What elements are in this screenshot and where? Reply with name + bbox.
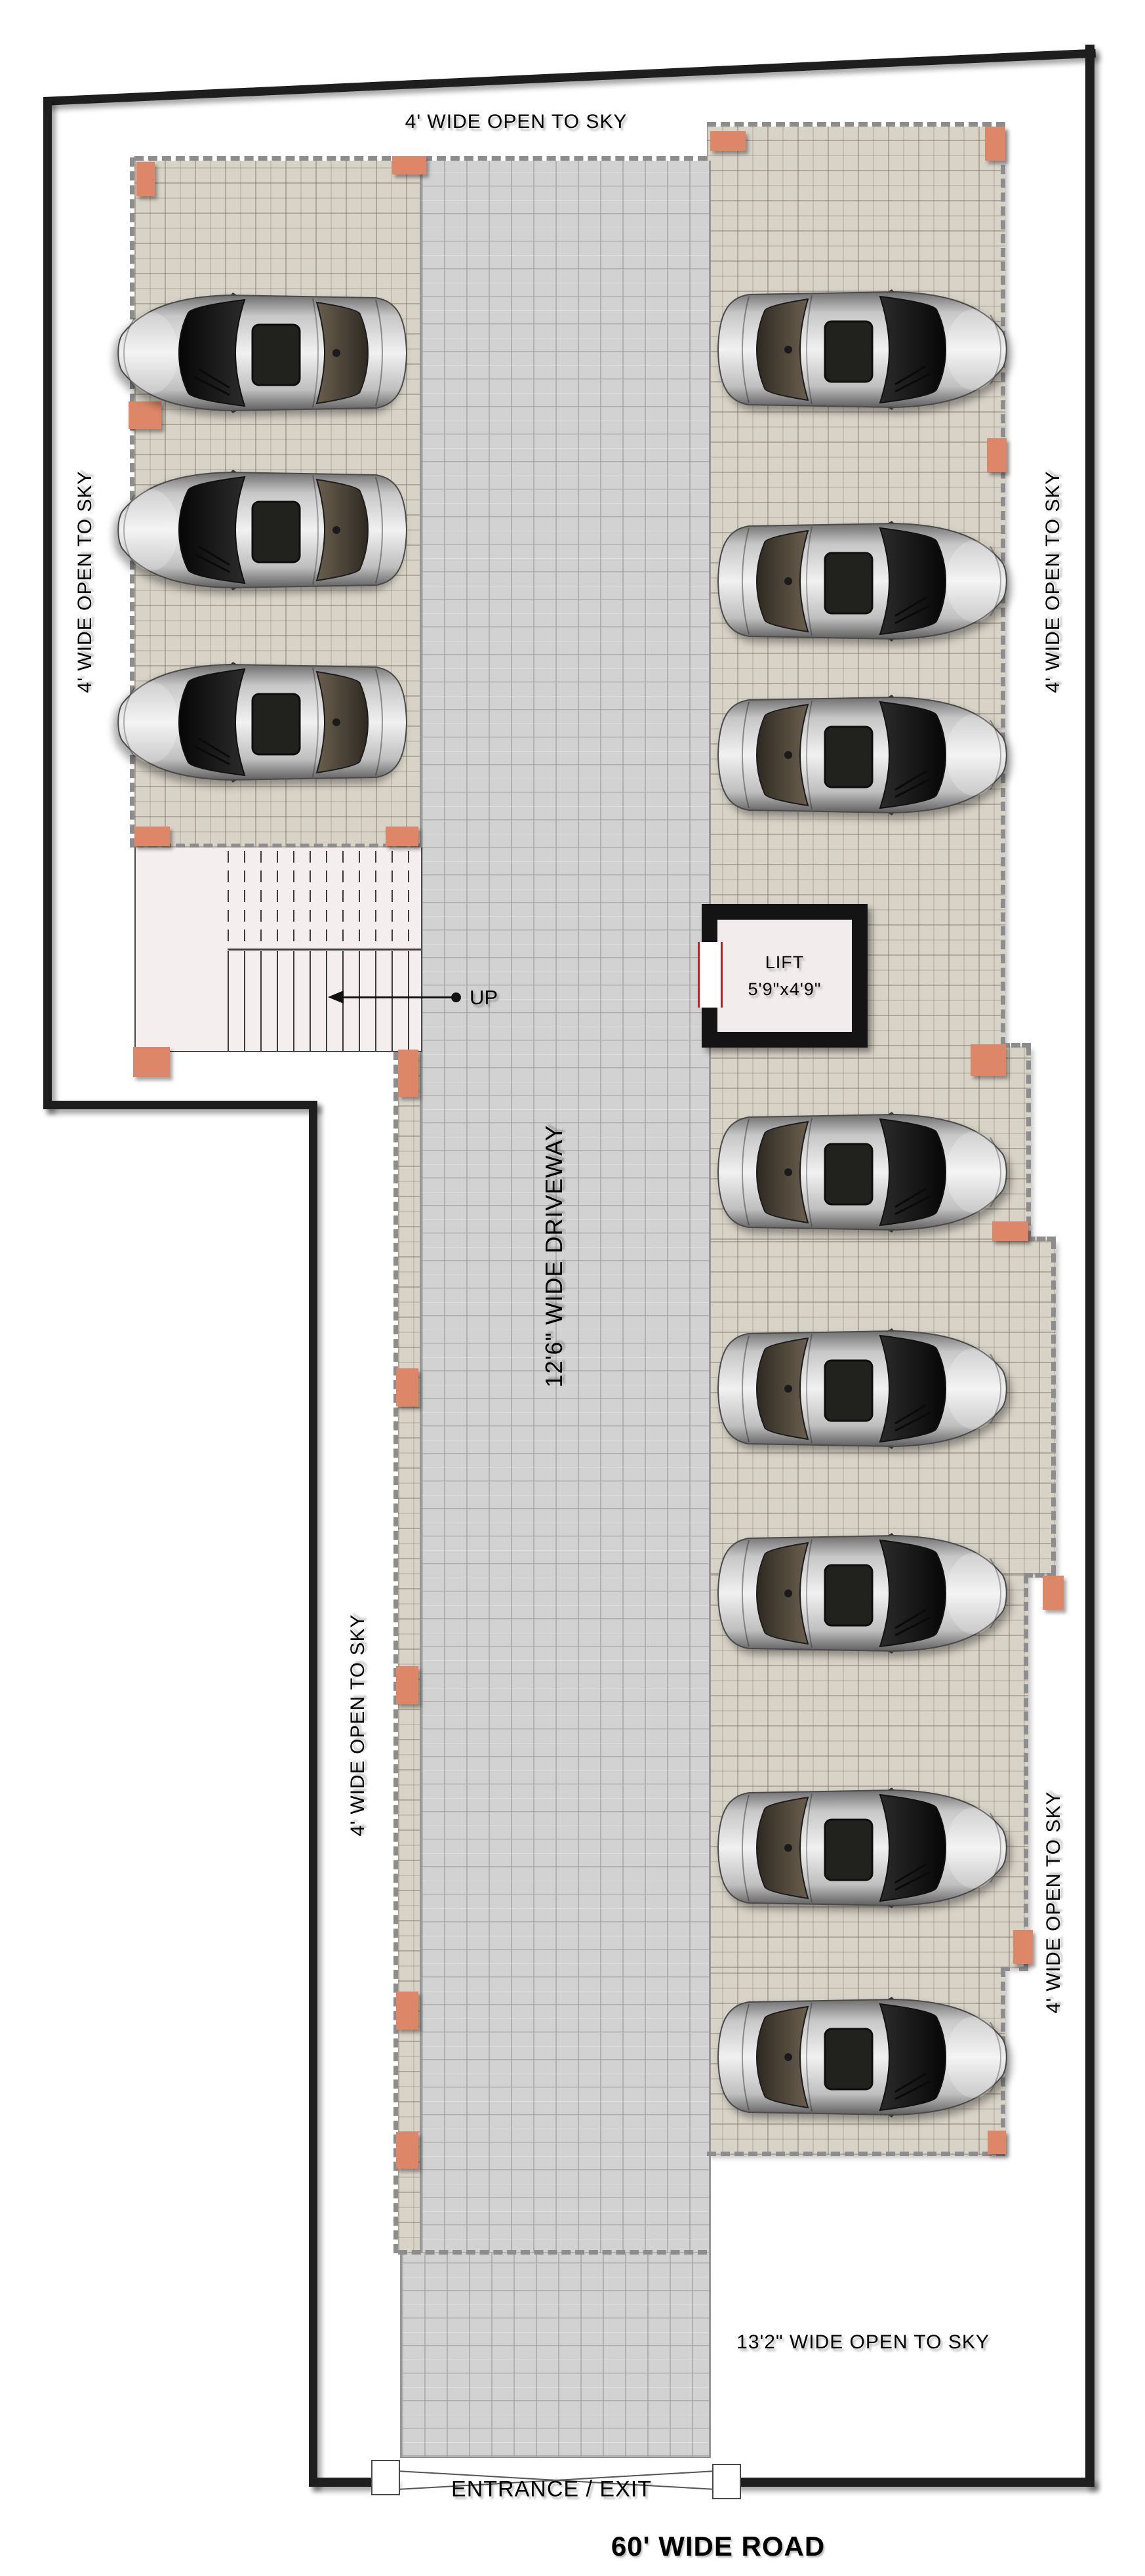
car-top-view (708, 1111, 1016, 1233)
lift: LIFT 5'9"x4'9" (702, 904, 868, 1048)
label-road: 60' WIDE ROAD (611, 2531, 825, 2562)
wall-left-lower (309, 1101, 317, 2486)
dashed-edge-right-4 (1024, 1574, 1028, 1968)
car-top-view (708, 1787, 1016, 1909)
gate-post-right (712, 2464, 741, 2499)
column (392, 156, 426, 174)
column (386, 827, 418, 846)
column (971, 1044, 1006, 1076)
wall-bottom-right (715, 2478, 1095, 2487)
wall-top (43, 49, 1096, 106)
label-open-sky-top: 4' WIDE OPEN TO SKY (405, 111, 628, 133)
dashed-edge-strip (393, 1051, 398, 2253)
up-arrow-dot (451, 992, 461, 1002)
driveway-entrance-section (400, 2253, 711, 2458)
label-open-sky-right-top: 4' WIDE OPEN TO SKY (1042, 471, 1064, 693)
up-arrow-shaft (342, 996, 455, 998)
wall-notch (43, 1101, 317, 1109)
up-label: UP (470, 986, 498, 1010)
column (396, 1992, 418, 2030)
column (1043, 1576, 1064, 1610)
column (710, 131, 746, 151)
column (987, 438, 1007, 472)
label-open-sky-right-bottom: 4' WIDE OPEN TO SKY (1043, 1791, 1065, 2014)
wall-right (1085, 45, 1095, 2487)
gate-post-left (371, 2460, 400, 2495)
car-top-view (108, 292, 416, 414)
dashed-edge-right-2 (1026, 1046, 1031, 1240)
lift-title: LIFT (765, 949, 805, 976)
car-top-view (708, 289, 1016, 411)
column (133, 1047, 170, 1077)
stair-treads-lower (228, 951, 421, 1051)
label-open-sky-left-bottom: 4' WIDE OPEN TO SKY (347, 1614, 369, 1837)
column (396, 2132, 418, 2169)
stair-break-line (228, 949, 421, 951)
lift-cabin: LIFT 5'9"x4'9" (717, 920, 852, 1032)
car-top-view (108, 661, 416, 783)
stair-treads-upper (228, 848, 421, 949)
staircase (134, 848, 422, 1052)
car-top-view (708, 520, 1016, 642)
car-top-view (708, 1996, 1016, 2118)
paver-strip-left (398, 1051, 420, 2253)
lift-size: 5'9"x4'9" (748, 976, 821, 1003)
label-entrance: ENTRANCE / EXIT (451, 2477, 652, 2503)
car-top-view (708, 1532, 1016, 1654)
car-top-view (108, 469, 416, 591)
label-open-sky-13: 13'2" WIDE OPEN TO SKY (736, 2331, 990, 2354)
column (398, 1050, 418, 1097)
lift-door (698, 942, 723, 1008)
column (985, 127, 1005, 161)
dashed-edge-right-3 (1051, 1240, 1056, 1574)
column (988, 2131, 1006, 2154)
wall-left-upper (43, 97, 52, 1109)
label-driveway: 12'6" WIDE DRIVEWAY (540, 1125, 568, 1388)
column (396, 1368, 418, 1406)
car-top-view (708, 694, 1016, 816)
label-open-sky-left-top: 4' WIDE OPEN TO SKY (74, 471, 96, 693)
up-arrow-head (328, 991, 344, 1004)
dashed-edge-bottom-right (707, 2152, 1005, 2156)
column (134, 827, 170, 846)
column (1013, 1930, 1033, 1964)
car-top-view (708, 1328, 1016, 1450)
floor-plan: UP LIFT 5'9"x4'9" 4' WIDE OPEN TO SKY 4'… (0, 0, 1145, 2576)
column (136, 162, 155, 196)
column (396, 1666, 418, 1704)
dashed-edge-strip-bottom (398, 2250, 707, 2255)
dashed-edge-top-right (707, 122, 1005, 127)
